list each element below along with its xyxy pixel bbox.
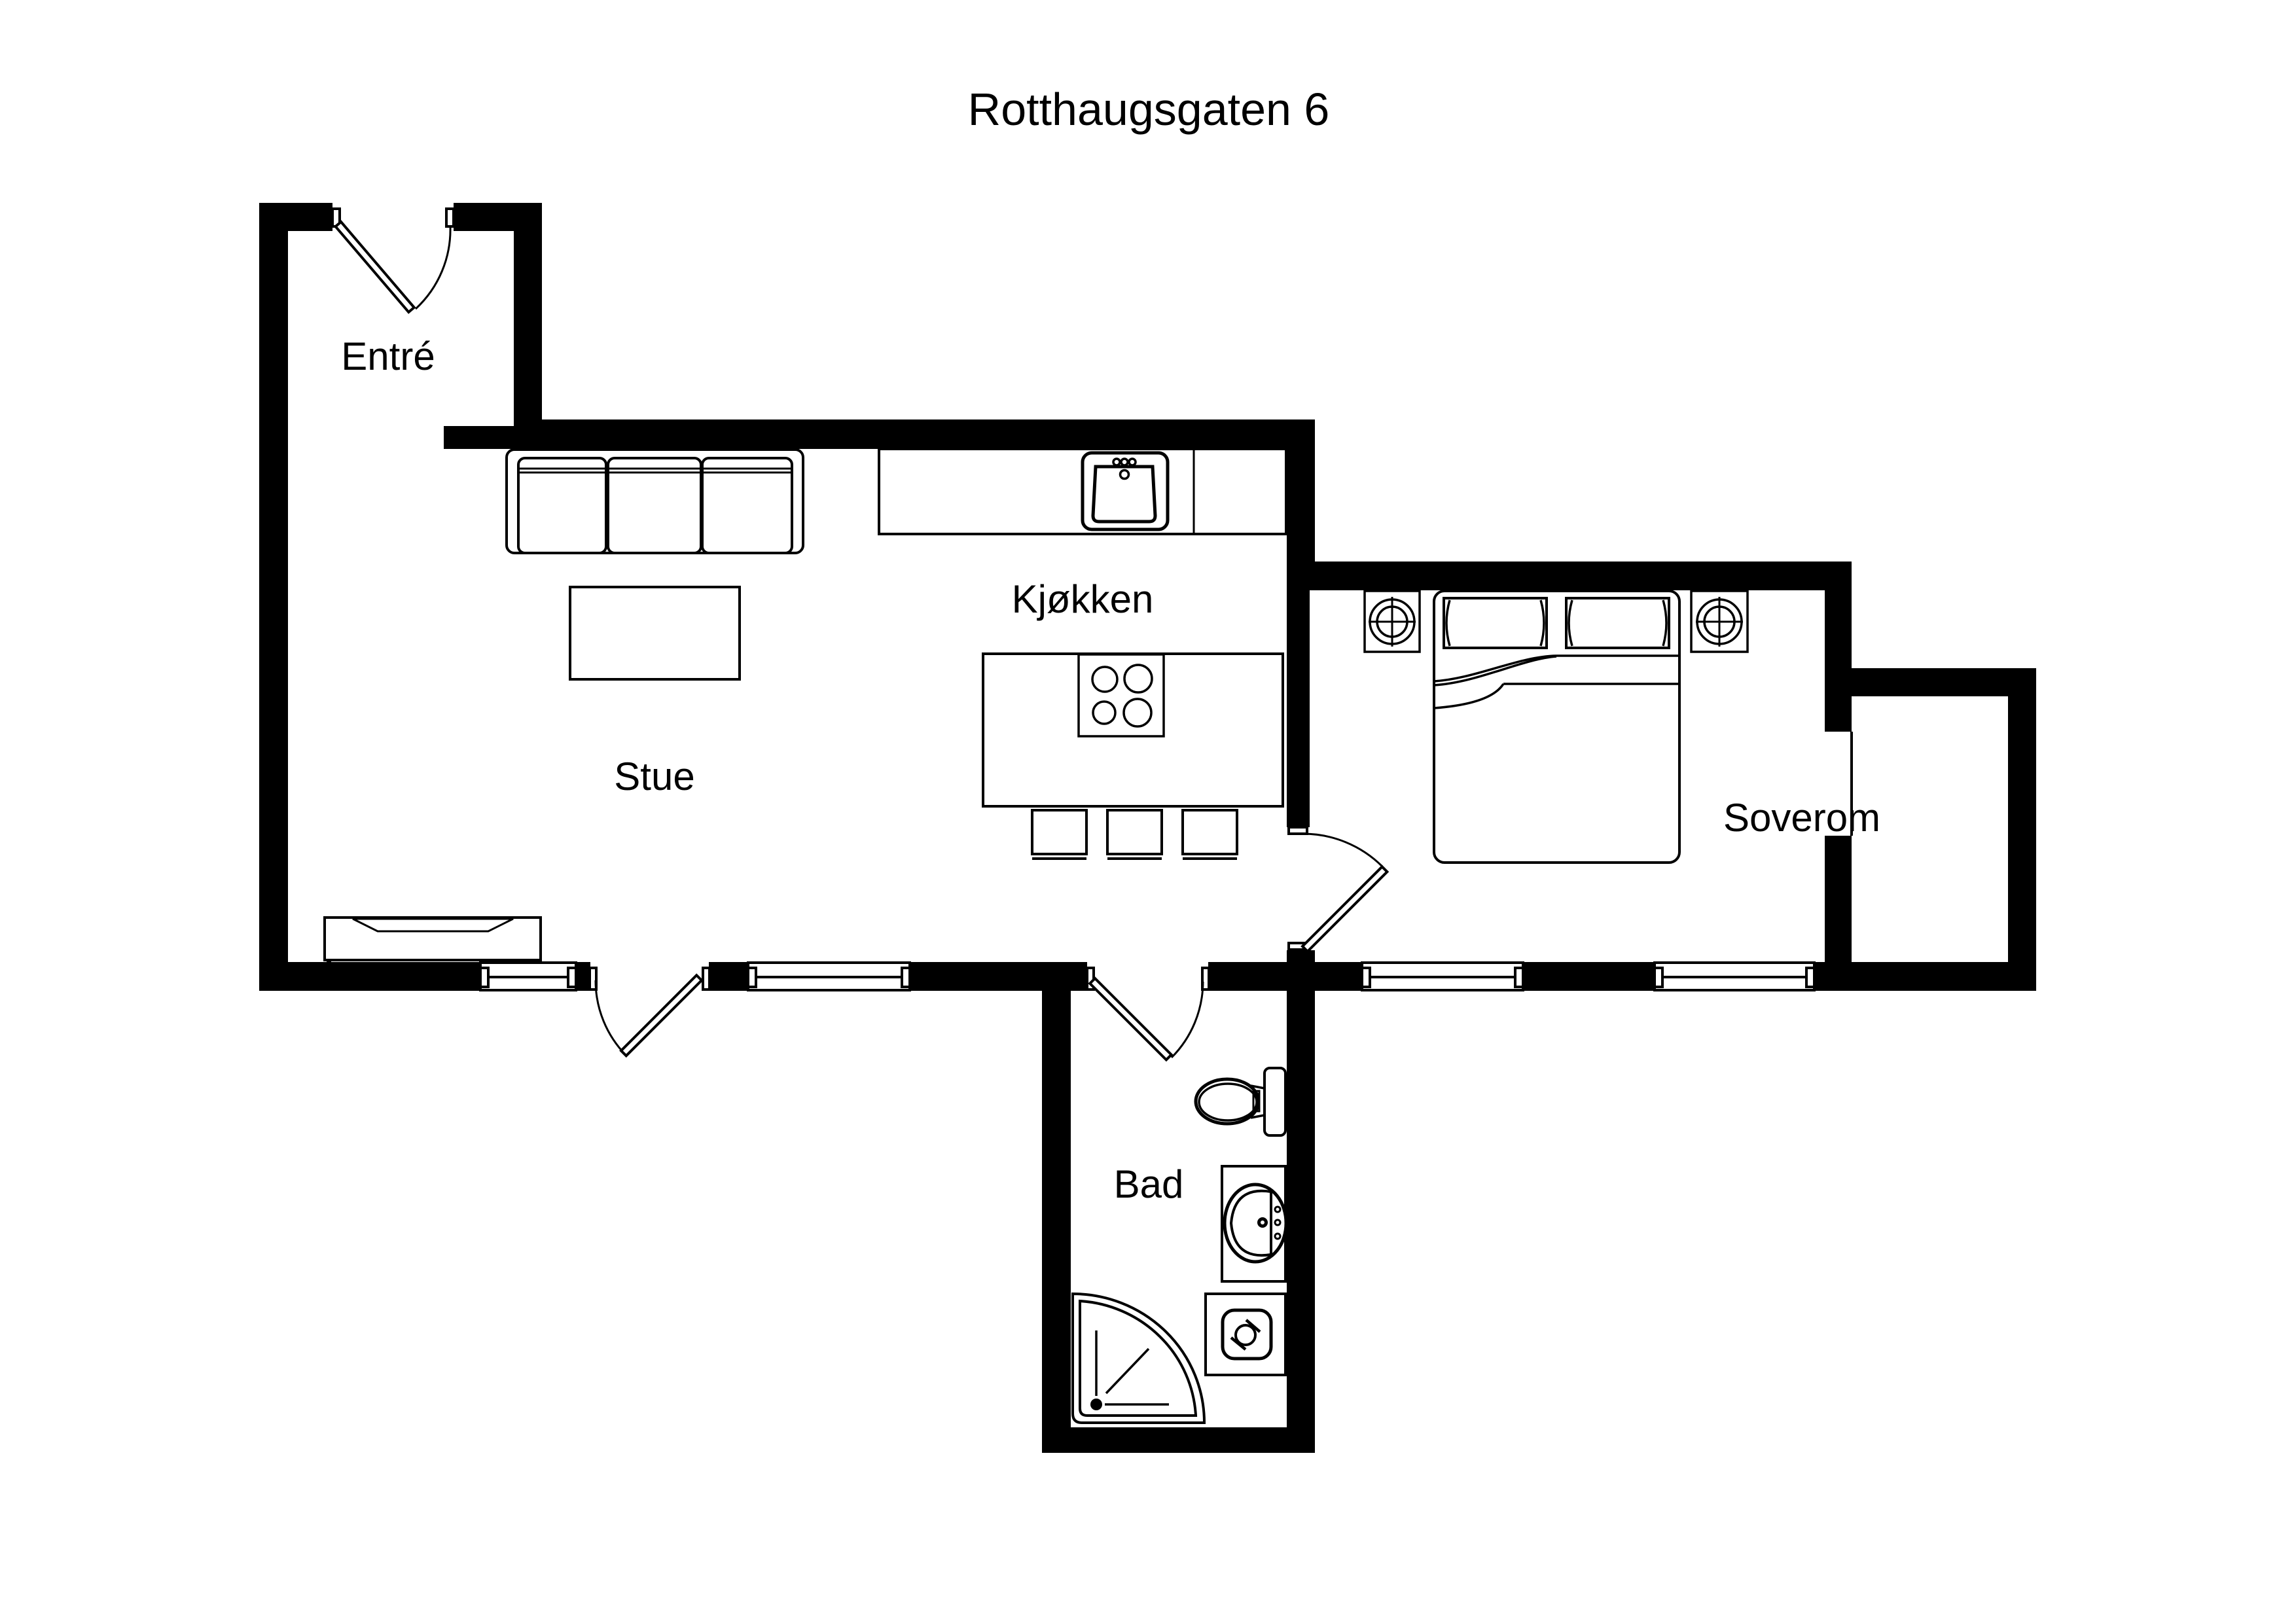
svg-text:Bad: Bad bbox=[1114, 1162, 1184, 1206]
svg-text:Rotthaugsgaten 6: Rotthaugsgaten 6 bbox=[968, 84, 1330, 135]
svg-text:Entré: Entré bbox=[341, 334, 435, 378]
svg-text:Stue: Stue bbox=[614, 755, 694, 798]
svg-text:Kjøkken: Kjøkken bbox=[1012, 577, 1154, 621]
svg-text:Soverom: Soverom bbox=[1723, 796, 1880, 840]
